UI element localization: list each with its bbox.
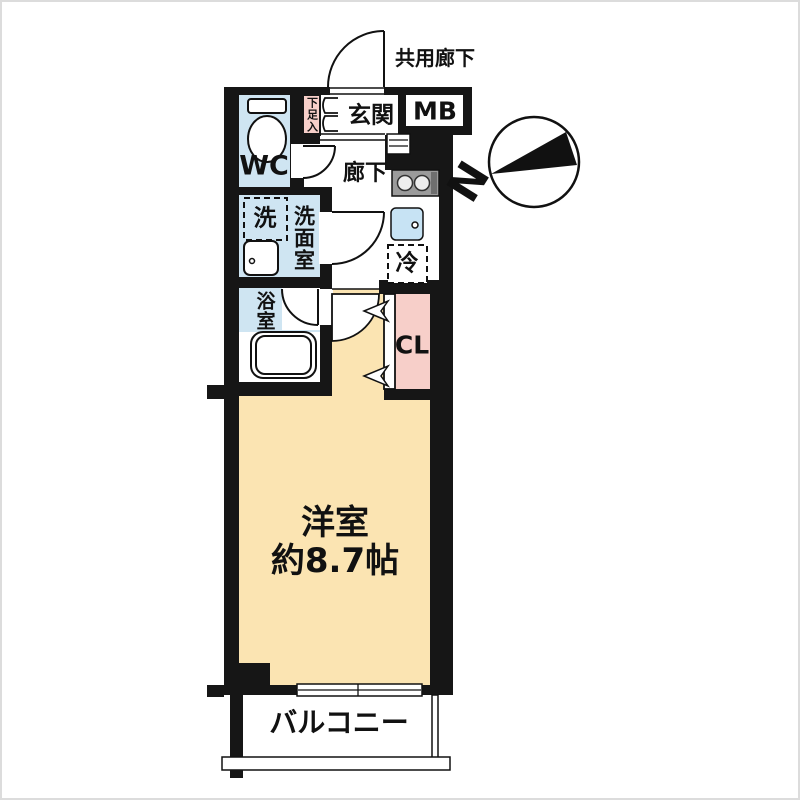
washbasin-icon (244, 241, 278, 275)
closet-label: CL (395, 333, 429, 358)
entrance-step (320, 134, 385, 140)
wc-doorway-gap (291, 144, 304, 178)
balcony-label: バルコニー (269, 709, 408, 737)
refrigerator-label: 冷 (396, 253, 419, 276)
bathtub-icon (251, 332, 316, 378)
wc-label: WC (239, 153, 289, 180)
meter-box-label: MB (413, 99, 457, 124)
floor-plan: 共用廊下 玄関 MB 下足入 WC 廊下 洗 洗面室 冷 浴室 CL 洋室 約8… (0, 0, 800, 800)
washroom-door (332, 212, 384, 264)
washroom-label: 洗面室 (293, 205, 314, 271)
entrance-label: 玄関 (348, 105, 394, 128)
floor-plan-drawing (2, 2, 800, 800)
wc-door (303, 146, 335, 178)
sliding-window (297, 684, 422, 696)
shoe-cabinet-label: 下足入 (307, 97, 318, 133)
bathroom-label: 浴室 (255, 291, 274, 331)
kitchen-sink-icon (391, 208, 423, 240)
north-compass-icon (489, 117, 579, 207)
balcony-side-wall (432, 695, 438, 758)
entrance-door (328, 31, 384, 87)
shared-corridor-label: 共用廊下 (395, 48, 475, 68)
balcony-wall-foot (230, 770, 243, 778)
range-hood-icon (387, 134, 410, 154)
hallway-label: 廊下 (343, 163, 387, 185)
shoe-cabinet-doors (323, 98, 338, 131)
washroom-doorway-gap (319, 212, 333, 264)
room-type-label: 洋室 (301, 506, 369, 540)
bathroom-doorway-gap (317, 289, 333, 325)
room-size-label: 約8.7帖 (271, 544, 399, 578)
balcony-railing (222, 757, 450, 770)
closet-sliding-door (384, 294, 395, 389)
washer-label: 洗 (254, 208, 277, 231)
stove-icon (392, 170, 439, 196)
